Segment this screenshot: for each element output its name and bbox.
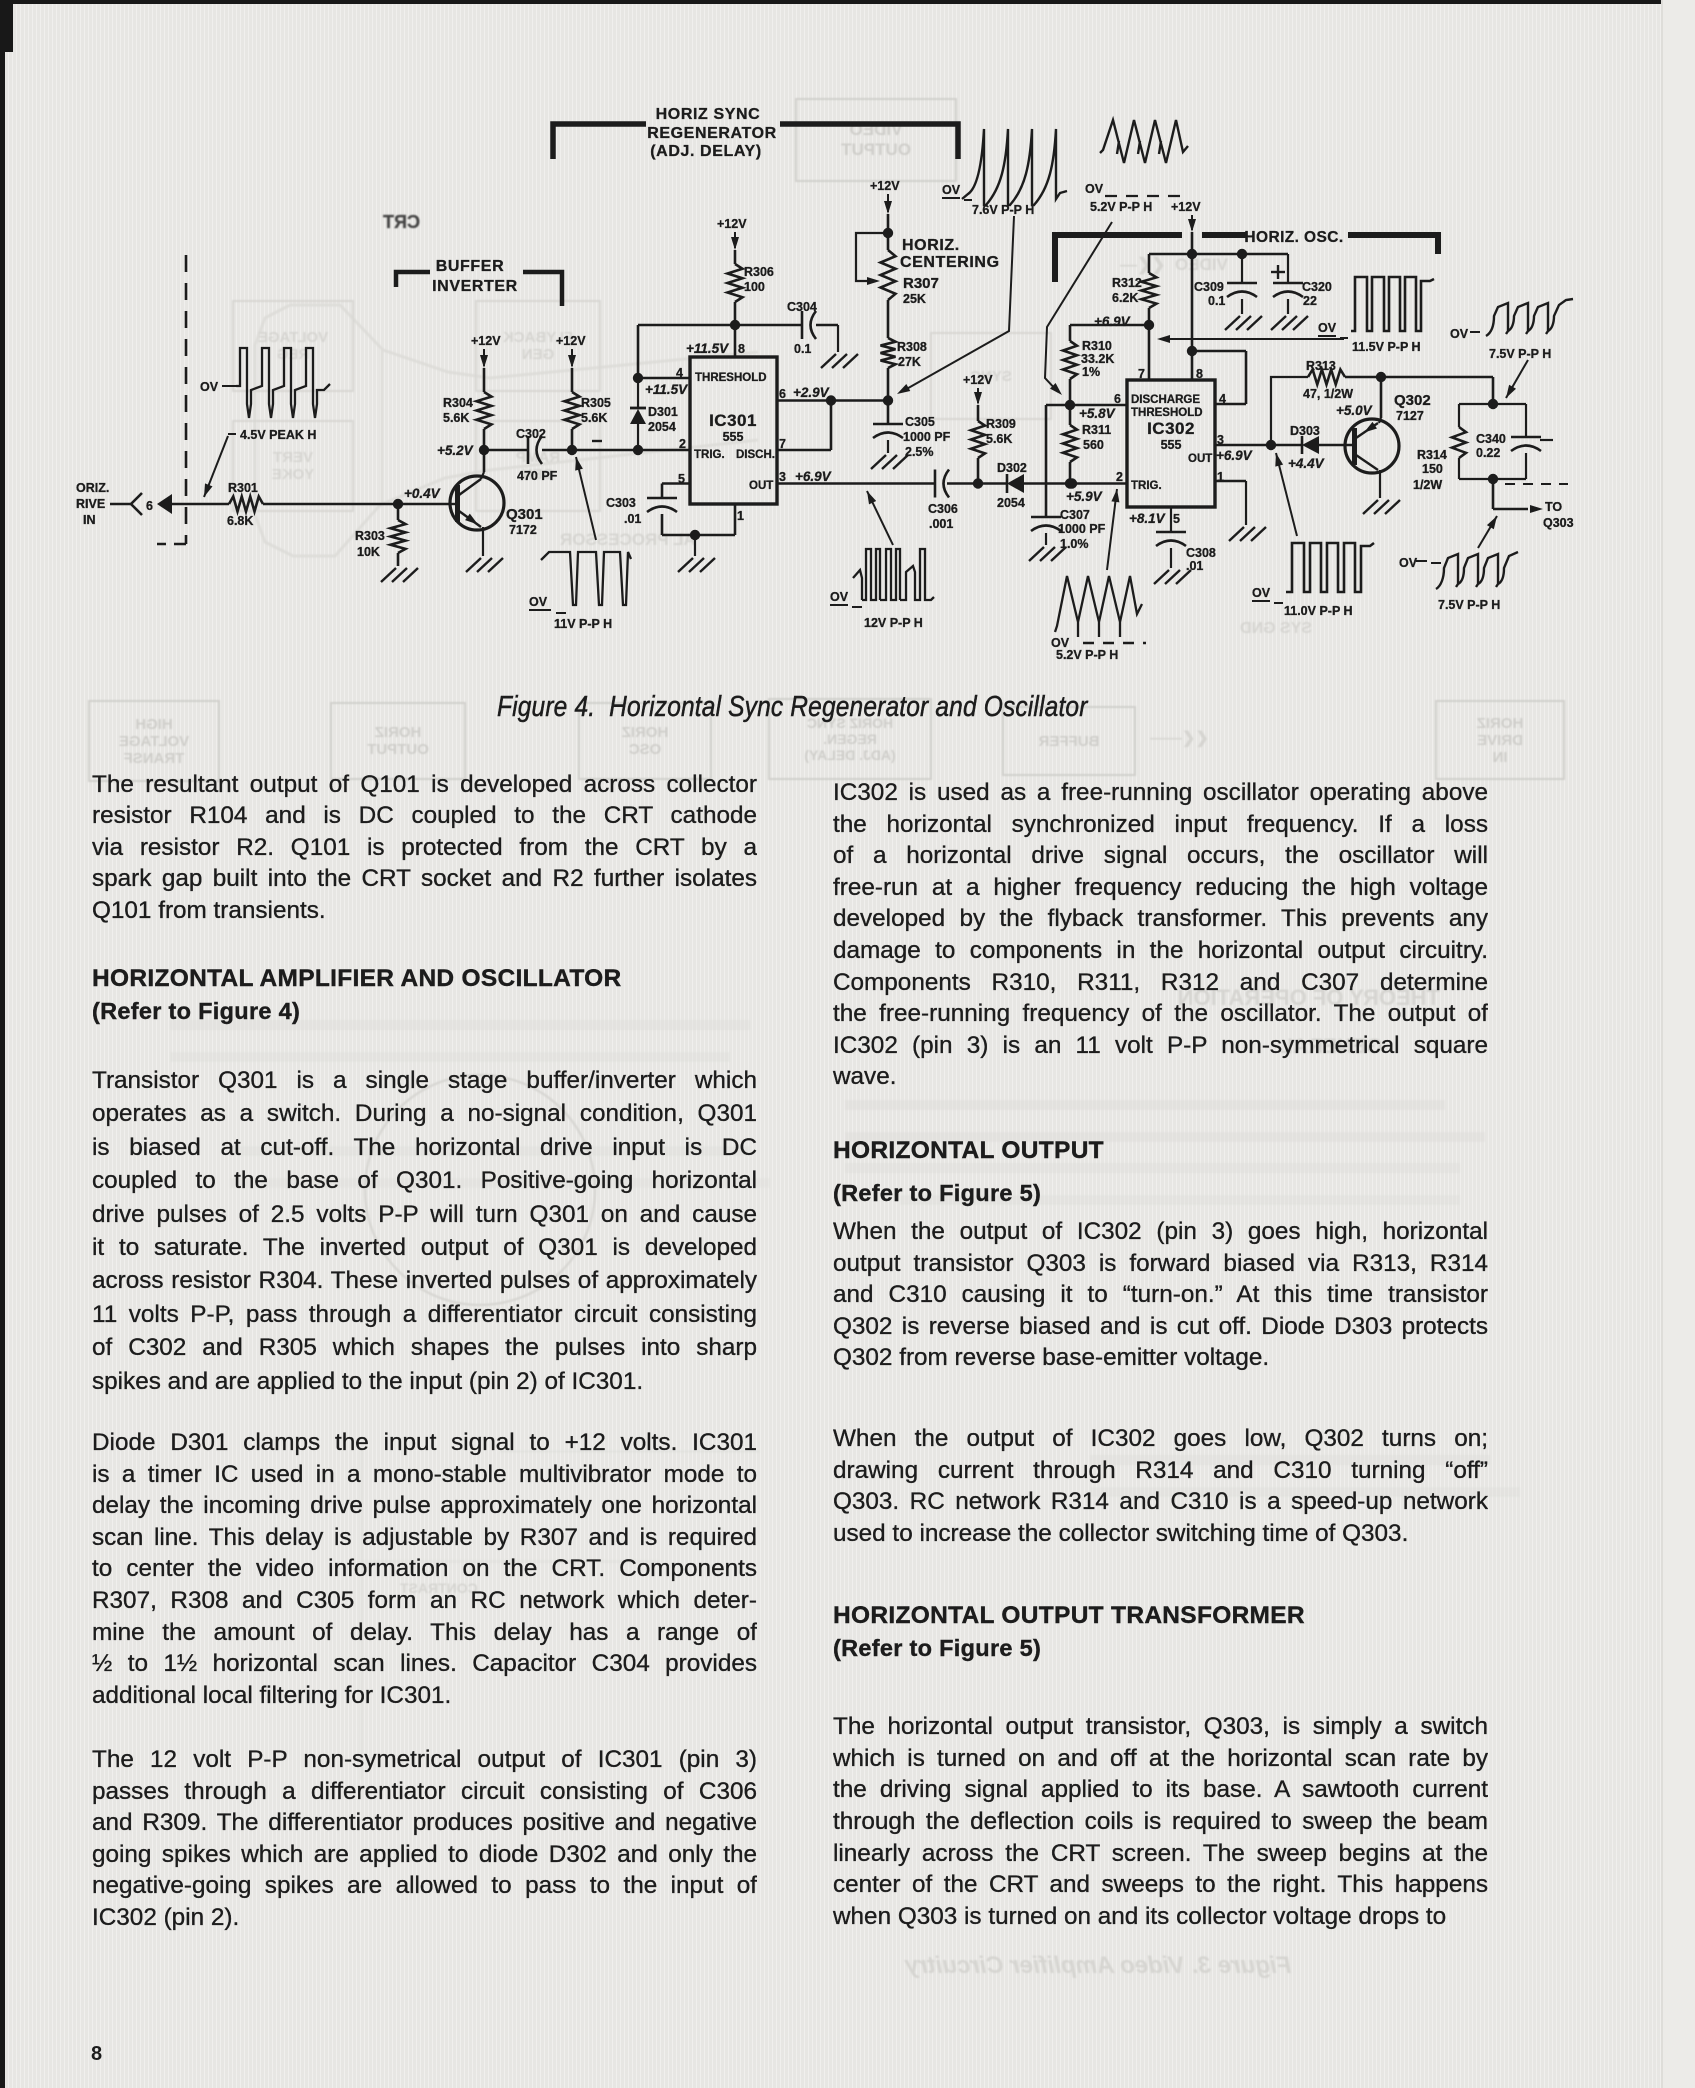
svg-text:5.6K: 5.6K: [443, 411, 469, 425]
svg-text:C307: C307: [1060, 508, 1090, 522]
svg-text:D302: D302: [997, 461, 1027, 475]
svg-text:1000 PF: 1000 PF: [1058, 522, 1106, 536]
svg-text:THRESHOLD: THRESHOLD: [695, 372, 767, 384]
svg-text:OV: OV: [830, 590, 849, 604]
svg-text:4.5V PEAK H: 4.5V PEAK H: [240, 428, 316, 442]
svg-text:C303: C303: [606, 496, 636, 510]
svg-text:C308: C308: [1186, 546, 1216, 560]
svg-text:12V P-P H: 12V P-P H: [864, 616, 923, 630]
svg-text:7.5V P-P H: 7.5V P-P H: [1438, 598, 1500, 612]
svg-text:5.6K: 5.6K: [986, 432, 1012, 446]
svg-text:+11.5V: +11.5V: [686, 341, 729, 356]
svg-text:OV: OV: [1399, 556, 1418, 570]
svg-text:4: 4: [676, 366, 683, 380]
svg-text:+12V: +12V: [870, 179, 900, 193]
svg-text:D301: D301: [648, 405, 678, 419]
svg-text:+12V: +12V: [717, 217, 747, 231]
svg-text:5.6K: 5.6K: [581, 411, 607, 425]
svg-text:OV: OV: [1318, 321, 1337, 335]
svg-text:5.2V P-P H: 5.2V P-P H: [1056, 648, 1118, 662]
svg-text:REGENERATOR: REGENERATOR: [647, 125, 777, 142]
svg-text:.001: .001: [929, 517, 953, 531]
svg-text:OUT: OUT: [749, 480, 773, 492]
svg-text:IC302: IC302: [1147, 419, 1195, 438]
svg-text:C302: C302: [516, 427, 546, 441]
svg-text:RIVE: RIVE: [76, 497, 105, 511]
svg-text:7127: 7127: [1396, 409, 1424, 423]
svg-text:HORIZ SYNC: HORIZ SYNC: [656, 106, 761, 123]
svg-text:+6.9V: +6.9V: [795, 469, 832, 484]
svg-text:C320: C320: [1302, 280, 1332, 294]
svg-text:11V P-P H: 11V P-P H: [554, 617, 612, 631]
svg-text:ORIZ.: ORIZ.: [76, 481, 109, 495]
svg-text:7: 7: [779, 437, 786, 451]
svg-text:CENTERING: CENTERING: [900, 254, 1000, 271]
svg-text:R305: R305: [581, 396, 611, 410]
svg-text:150: 150: [1422, 462, 1443, 476]
svg-text:+0.4V: +0.4V: [404, 486, 441, 501]
svg-text:8: 8: [738, 342, 745, 356]
svg-text:R301: R301: [228, 481, 258, 495]
svg-text:C309: C309: [1194, 280, 1224, 294]
svg-text:5: 5: [1173, 512, 1180, 526]
svg-text:+12V: +12V: [471, 334, 501, 348]
svg-text:2: 2: [679, 437, 686, 451]
svg-text:OV: OV: [200, 380, 219, 394]
svg-text:+12V: +12V: [1171, 200, 1201, 214]
svg-text:+12V: +12V: [556, 334, 586, 348]
svg-text:+5.2V: +5.2V: [437, 443, 474, 458]
svg-text:INVERTER: INVERTER: [432, 278, 518, 295]
svg-text:+12V: +12V: [963, 373, 993, 387]
svg-text:6: 6: [1114, 392, 1121, 406]
svg-text:11.5V P-P H: 11.5V P-P H: [1352, 340, 1421, 354]
svg-text:C306: C306: [928, 502, 958, 516]
svg-text:0.22: 0.22: [1476, 446, 1500, 460]
svg-text:OUT: OUT: [1188, 453, 1212, 465]
svg-text:+5.0V: +5.0V: [1336, 403, 1373, 418]
svg-text:25K: 25K: [903, 292, 926, 306]
svg-text:7.5V P-P H: 7.5V P-P H: [1489, 347, 1551, 361]
svg-text:22: 22: [1303, 294, 1317, 308]
svg-text:BUFFER: BUFFER: [436, 258, 504, 275]
svg-text:R307: R307: [903, 275, 939, 292]
svg-text:1: 1: [737, 509, 744, 523]
svg-text:TRIG.: TRIG.: [694, 449, 725, 461]
svg-text:470 PF: 470 PF: [517, 469, 558, 483]
svg-text:THRESHOLD: THRESHOLD: [1131, 407, 1203, 419]
svg-text:560: 560: [1083, 438, 1104, 452]
svg-text:R306: R306: [744, 265, 774, 279]
svg-text:IN: IN: [83, 513, 96, 527]
svg-text:Q301: Q301: [506, 506, 543, 523]
svg-text:+5.9V: +5.9V: [1066, 489, 1103, 504]
svg-text:R308: R308: [897, 340, 927, 354]
svg-text:.01: .01: [624, 512, 641, 526]
svg-text:6.8K: 6.8K: [227, 514, 253, 528]
svg-text:+11.5V: +11.5V: [645, 382, 688, 397]
svg-text:Q302: Q302: [1394, 392, 1431, 409]
svg-text:R312: R312: [1112, 276, 1142, 290]
svg-text:R309: R309: [986, 417, 1016, 431]
svg-text:2.5%: 2.5%: [905, 445, 934, 459]
svg-text:+4.4V: +4.4V: [1288, 456, 1325, 471]
svg-text:(ADJ. DELAY): (ADJ. DELAY): [650, 143, 762, 160]
svg-text:C305: C305: [905, 415, 935, 429]
svg-text:HORIZ. OSC.: HORIZ. OSC.: [1244, 229, 1343, 246]
svg-text:33.2K: 33.2K: [1081, 352, 1114, 366]
svg-text:0.1: 0.1: [1208, 294, 1225, 308]
svg-text:OV: OV: [942, 183, 961, 197]
svg-text:555: 555: [1161, 438, 1182, 452]
svg-text:1%: 1%: [1082, 365, 1100, 379]
svg-text:OV: OV: [1252, 586, 1271, 600]
svg-text:C304: C304: [787, 300, 817, 314]
svg-text:C340: C340: [1476, 432, 1506, 446]
svg-text:1000 PF: 1000 PF: [903, 430, 951, 444]
svg-text:+8.1V: +8.1V: [1129, 511, 1166, 526]
svg-text:OV: OV: [1085, 182, 1104, 196]
svg-text:7172: 7172: [509, 523, 537, 537]
svg-text:+2.9V: +2.9V: [793, 385, 830, 400]
svg-text:1/2W: 1/2W: [1413, 478, 1442, 492]
svg-text:2054: 2054: [648, 420, 676, 434]
svg-text:7.6V P-P H: 7.6V P-P H: [972, 203, 1034, 217]
svg-text:HORIZ.: HORIZ.: [902, 237, 960, 254]
svg-text:OV: OV: [529, 595, 548, 609]
svg-text:R311: R311: [1082, 423, 1111, 437]
svg-text:R314: R314: [1417, 448, 1447, 462]
svg-text:DISCHARGE: DISCHARGE: [1131, 394, 1200, 406]
svg-text:4: 4: [1219, 392, 1226, 406]
svg-text:+6.9V: +6.9V: [1094, 314, 1131, 329]
svg-text:3: 3: [1217, 433, 1224, 447]
svg-text:11.0V P-P H: 11.0V P-P H: [1284, 604, 1353, 618]
svg-text:0.1: 0.1: [794, 342, 811, 356]
svg-text:2: 2: [1116, 470, 1123, 484]
svg-text:3: 3: [779, 470, 786, 484]
svg-text:TRIG.: TRIG.: [1131, 480, 1162, 492]
svg-text:DISCH.: DISCH.: [736, 449, 775, 461]
svg-text:R310: R310: [1082, 339, 1112, 353]
svg-text:47, 1/2W: 47, 1/2W: [1303, 387, 1353, 401]
svg-text:R304: R304: [443, 396, 473, 410]
svg-text:100: 100: [744, 280, 765, 294]
svg-text:TO: TO: [1545, 500, 1562, 514]
svg-text:R313: R313: [1306, 359, 1336, 373]
svg-text:5.2V P-P H: 5.2V P-P H: [1090, 200, 1152, 214]
svg-text:555: 555: [723, 430, 744, 444]
svg-text:OV: OV: [1450, 327, 1469, 341]
svg-text:+5.8V: +5.8V: [1079, 406, 1116, 421]
svg-text:2054: 2054: [997, 496, 1025, 510]
svg-text:6: 6: [779, 387, 786, 401]
svg-text:+6.9V: +6.9V: [1216, 448, 1253, 463]
svg-text:6: 6: [146, 499, 153, 513]
svg-text:27K: 27K: [898, 355, 921, 369]
svg-text:10K: 10K: [357, 545, 380, 559]
svg-text:Q303: Q303: [1543, 516, 1574, 530]
svg-text:R303: R303: [355, 529, 385, 543]
svg-text:D303: D303: [1290, 424, 1320, 438]
svg-text:6.2K: 6.2K: [1112, 291, 1138, 305]
svg-text:IC301: IC301: [709, 411, 757, 430]
